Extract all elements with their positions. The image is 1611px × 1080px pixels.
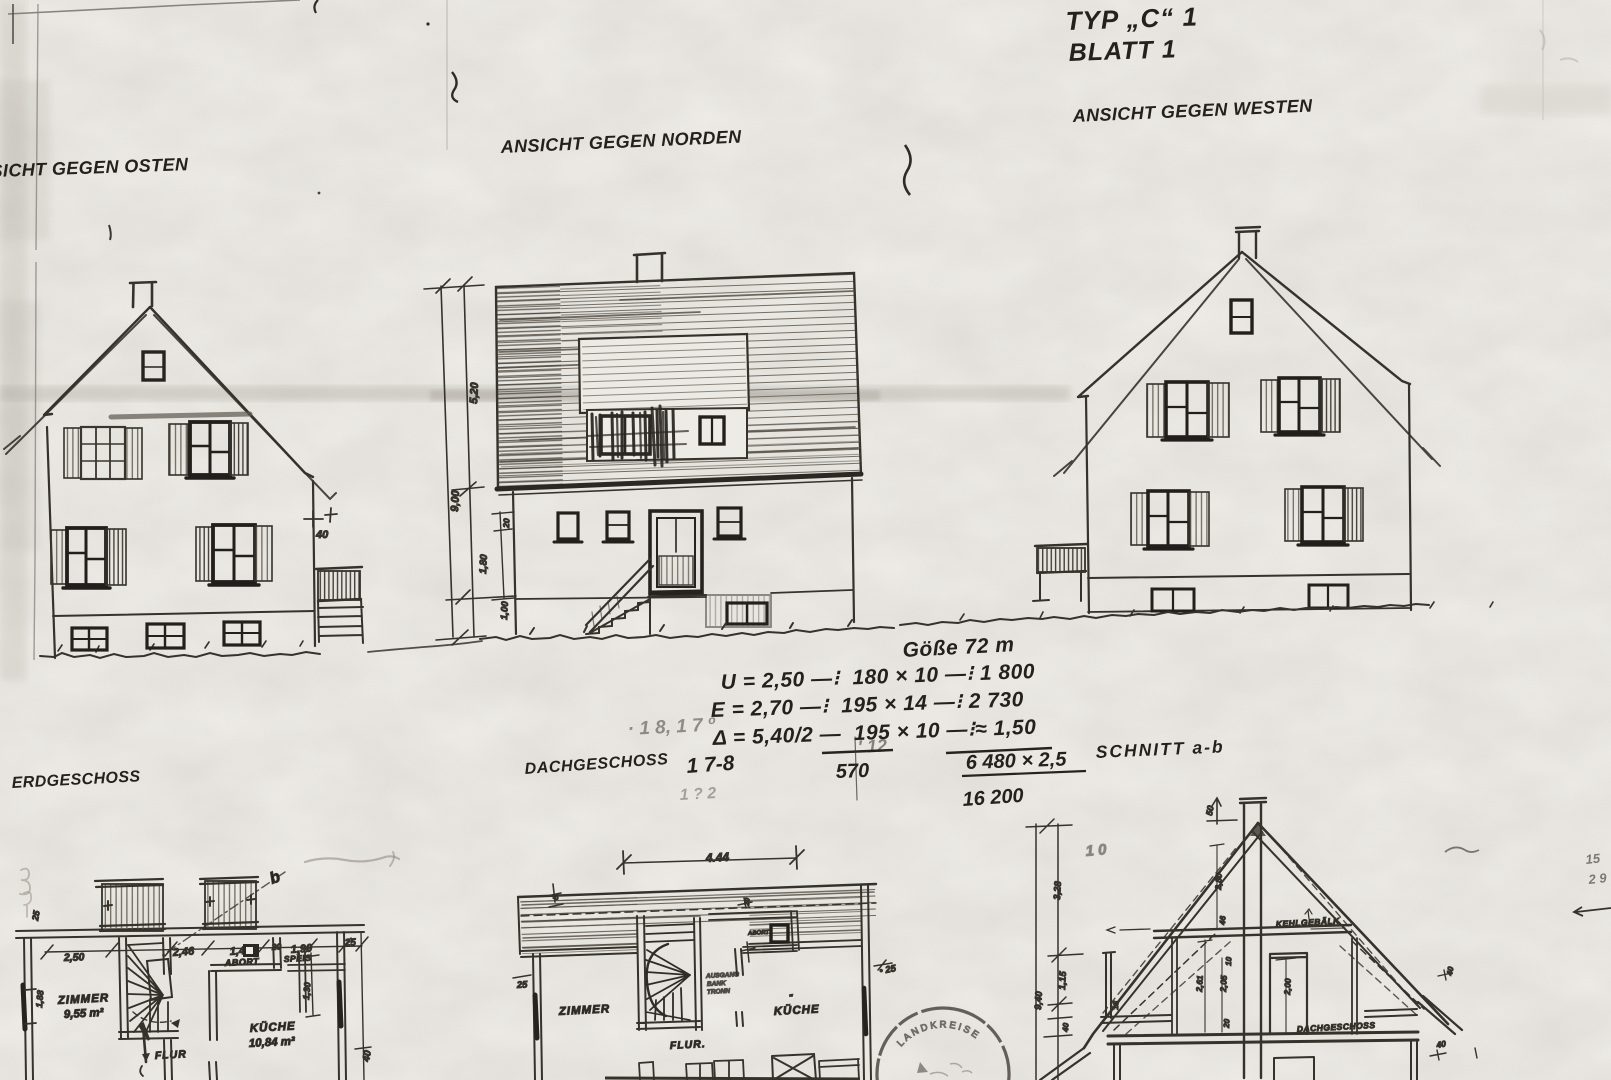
svg-text:20: 20	[1222, 1018, 1232, 1029]
svg-text:9,40: 9,40	[1033, 990, 1045, 1010]
svg-text:1,88: 1,88	[34, 990, 45, 1008]
svg-text:9,00: 9,00	[449, 489, 462, 512]
svg-text:BLATT 1: BLATT 1	[1068, 35, 1177, 67]
svg-text:40: 40	[315, 529, 329, 541]
svg-text:KÜCHE: KÜCHE	[249, 1020, 296, 1035]
svg-text:5,20: 5,20	[468, 381, 481, 404]
svg-text:10: 10	[1224, 956, 1233, 966]
svg-text:25: 25	[516, 979, 529, 991]
svg-text:1,00: 1,00	[499, 600, 511, 620]
svg-text:15: 15	[1585, 850, 1602, 867]
svg-text:1,80: 1,80	[478, 554, 490, 574]
svg-text:FLUR.: FLUR.	[670, 1038, 707, 1052]
svg-text:40: 40	[1061, 1022, 1071, 1033]
svg-text:3,28: 3,28	[1052, 880, 1064, 900]
svg-text:570: 570	[835, 760, 869, 783]
svg-text:TRONN: TRONN	[707, 988, 731, 996]
svg-text:′ 12: ′ 12	[857, 735, 887, 757]
svg-text:20: 20	[501, 518, 512, 529]
svg-text:SPEIS: SPEIS	[284, 953, 312, 964]
svg-text:2,61: 2,61	[1194, 975, 1205, 993]
svg-text:40: 40	[1435, 1038, 1447, 1050]
svg-text:40: 40	[361, 1049, 374, 1063]
svg-text:1,15: 1,15	[1057, 970, 1069, 990]
svg-text:1 7-8: 1 7-8	[686, 752, 736, 778]
svg-text:18: 18	[1111, 1000, 1120, 1010]
svg-text:25: 25	[343, 937, 356, 949]
svg-text:ABORT: ABORT	[224, 956, 261, 968]
svg-text:16 200: 16 200	[962, 785, 1025, 811]
svg-text:2,00: 2,00	[1282, 978, 1293, 996]
svg-text:46: 46	[1218, 915, 1228, 926]
svg-text:10,84 m²: 10,84 m²	[249, 1036, 297, 1050]
svg-text:20: 20	[744, 898, 752, 907]
svg-text:2,46: 2,46	[171, 945, 195, 959]
svg-text:4.44: 4.44	[704, 850, 729, 865]
svg-text:2,05: 2,05	[1218, 975, 1229, 993]
svg-text:2,50: 2,50	[63, 951, 85, 964]
svg-text:KÜCHE: KÜCHE	[773, 1003, 820, 1018]
svg-text:ABORT: ABORT	[747, 930, 771, 937]
svg-text:2,80: 2,80	[1213, 873, 1224, 891]
svg-text:1 0: 1 0	[1085, 841, 1108, 860]
svg-text:6 480 × 2,5: 6 480 × 2,5	[965, 748, 1067, 774]
svg-text:9,55 m²: 9,55 m²	[64, 1007, 105, 1021]
svg-text:2 9: 2 9	[1587, 870, 1608, 887]
svg-text:1 ? 2: 1 ? 2	[679, 785, 716, 804]
svg-text:TYP „C“ 1: TYP „C“ 1	[1065, 1, 1198, 36]
svg-text:1,30: 1,30	[301, 982, 312, 1000]
svg-text:50: 50	[1204, 805, 1216, 817]
svg-text:BANK: BANK	[707, 980, 727, 988]
